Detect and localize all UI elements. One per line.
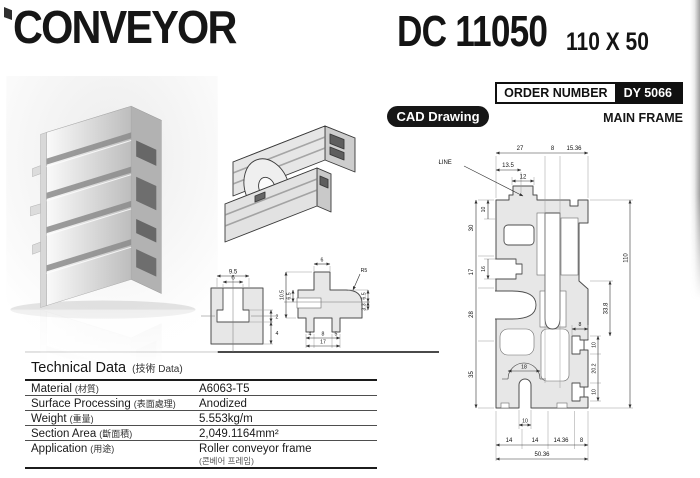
row-label: Material	[31, 383, 72, 395]
row-value: Roller conveyor frame	[199, 443, 311, 455]
dim-label: 14	[506, 438, 513, 444]
page-title: CONVEYOR	[13, 4, 236, 50]
row-label: Surface Processing	[31, 398, 131, 410]
vline-label: "V"-LINE	[438, 160, 452, 166]
dim-label: 35	[469, 371, 475, 378]
dim-label: 27	[517, 146, 524, 152]
dim-label: 3.3	[362, 303, 368, 310]
detail-drawing-b: R5 6 10.5 6.5 6.5 3.3 4 8 5 17	[274, 250, 374, 350]
technical-data-table: Technical Data(技術 Data) Material(材質) A60…	[25, 356, 377, 469]
dim-label: 12	[520, 175, 527, 181]
model-size: 110 X 50	[566, 30, 649, 55]
catalog-page: CONVEYOR DC 11050 110 X 50 ORDER NUMBER …	[0, 0, 700, 478]
dim-label: 6.5	[362, 292, 368, 299]
row-label-suffix: (斷面積)	[99, 429, 132, 439]
row-label-suffix: (表面處理)	[134, 399, 176, 409]
dim-label: 10	[592, 389, 598, 395]
dim-label: R5	[361, 268, 368, 274]
dim-label: 6	[321, 258, 324, 264]
table-title-row: Technical Data(技術 Data)	[25, 356, 377, 381]
row-value: A6063-T5	[199, 383, 250, 395]
dim-label: 14.36	[553, 438, 569, 444]
dim-label: 110	[624, 253, 630, 263]
dim-label: 50.36	[534, 452, 550, 458]
page-corner-mark	[4, 7, 12, 20]
table-row: Application(用途) Roller conveyor frame (콘…	[25, 441, 377, 467]
dim-label: 10.5	[280, 290, 286, 300]
row-value: Anodized	[199, 398, 247, 410]
dim-label: 10	[481, 207, 487, 213]
table-row: Section Area(斷面積) 2,049.1164mm²	[25, 426, 377, 441]
row-label: Section Area	[31, 428, 96, 440]
row-label-suffix: (材質)	[75, 384, 99, 394]
table-title: Technical Data	[31, 360, 126, 376]
dim-label: 6.5	[287, 292, 293, 299]
row-label-suffix: (用途)	[90, 444, 114, 454]
dim-label: 17	[469, 268, 475, 275]
row-value-sub: (콘베어 프레임)	[199, 455, 311, 467]
isometric-line-drawing	[203, 116, 395, 260]
table-row: Material(材質) A6063-T5	[25, 381, 377, 396]
dim-label: 10	[522, 419, 528, 425]
cad-cross-section: 27 8 15.36 13.5 12 "V"-LINE 30 17 28 35 …	[438, 133, 700, 478]
dim-label: 8	[579, 322, 582, 328]
row-label: Application	[31, 443, 87, 455]
dim-label: 28	[469, 311, 475, 318]
dim-label: 4	[309, 332, 312, 338]
dim-label: 17	[320, 340, 326, 346]
dim-label: 6	[231, 276, 235, 282]
frame-type-label: MAIN FRAME	[603, 111, 683, 125]
dim-label: 14	[532, 438, 539, 444]
row-value: 5.553kg/m	[199, 413, 253, 425]
dim-label: 15.36	[566, 146, 582, 152]
table-row: Surface Processing(表面處理) Anodized	[25, 396, 377, 411]
dim-label: 33.8	[604, 302, 610, 314]
order-number-value: DY 5066	[615, 84, 681, 102]
dim-label: 8	[551, 146, 555, 152]
order-number-box: ORDER NUMBER DY 5066	[495, 82, 683, 104]
dim-label: 20.2	[592, 363, 598, 373]
row-label-suffix: (重量)	[70, 414, 94, 424]
row-value: 2,049.1164mm²	[199, 428, 279, 440]
dim-label: 18	[521, 365, 527, 371]
row-label: Weight	[31, 413, 67, 425]
order-number-label: ORDER NUMBER	[497, 84, 614, 102]
dim-label: 5	[335, 332, 338, 338]
product-render-3d	[6, 76, 218, 368]
dim-label: 13.5	[502, 163, 514, 169]
extrusion-body	[30, 106, 161, 307]
dim-label: 8	[322, 332, 325, 338]
table-row: Weight(重量) 5.553kg/m	[25, 411, 377, 426]
dim-label: 16	[481, 266, 487, 272]
dim-label: 10	[592, 342, 598, 348]
table-title-suffix: (技術 Data)	[132, 364, 183, 375]
dim-label: 30	[469, 224, 475, 231]
model-number: DC 11050	[397, 10, 547, 54]
dim-label: 8	[580, 438, 584, 444]
cad-drawing-badge: CAD Drawing	[387, 106, 489, 127]
